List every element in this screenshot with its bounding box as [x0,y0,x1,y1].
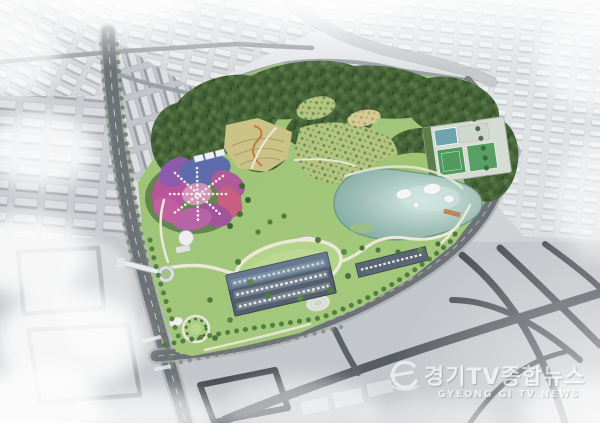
aerial-rendering: 경기TV종합뉴스 GYEONG GI TV NEWS [0,0,600,423]
watermark-english-text: GYEONG GI TV NEWS [438,389,580,400]
rendering-canvas: 경기TV종합뉴스 GYEONG GI TV NEWS [0,0,600,423]
watermark-korean-text: 경기TV종합뉴스 [424,364,585,390]
edge-vignette [0,0,600,423]
